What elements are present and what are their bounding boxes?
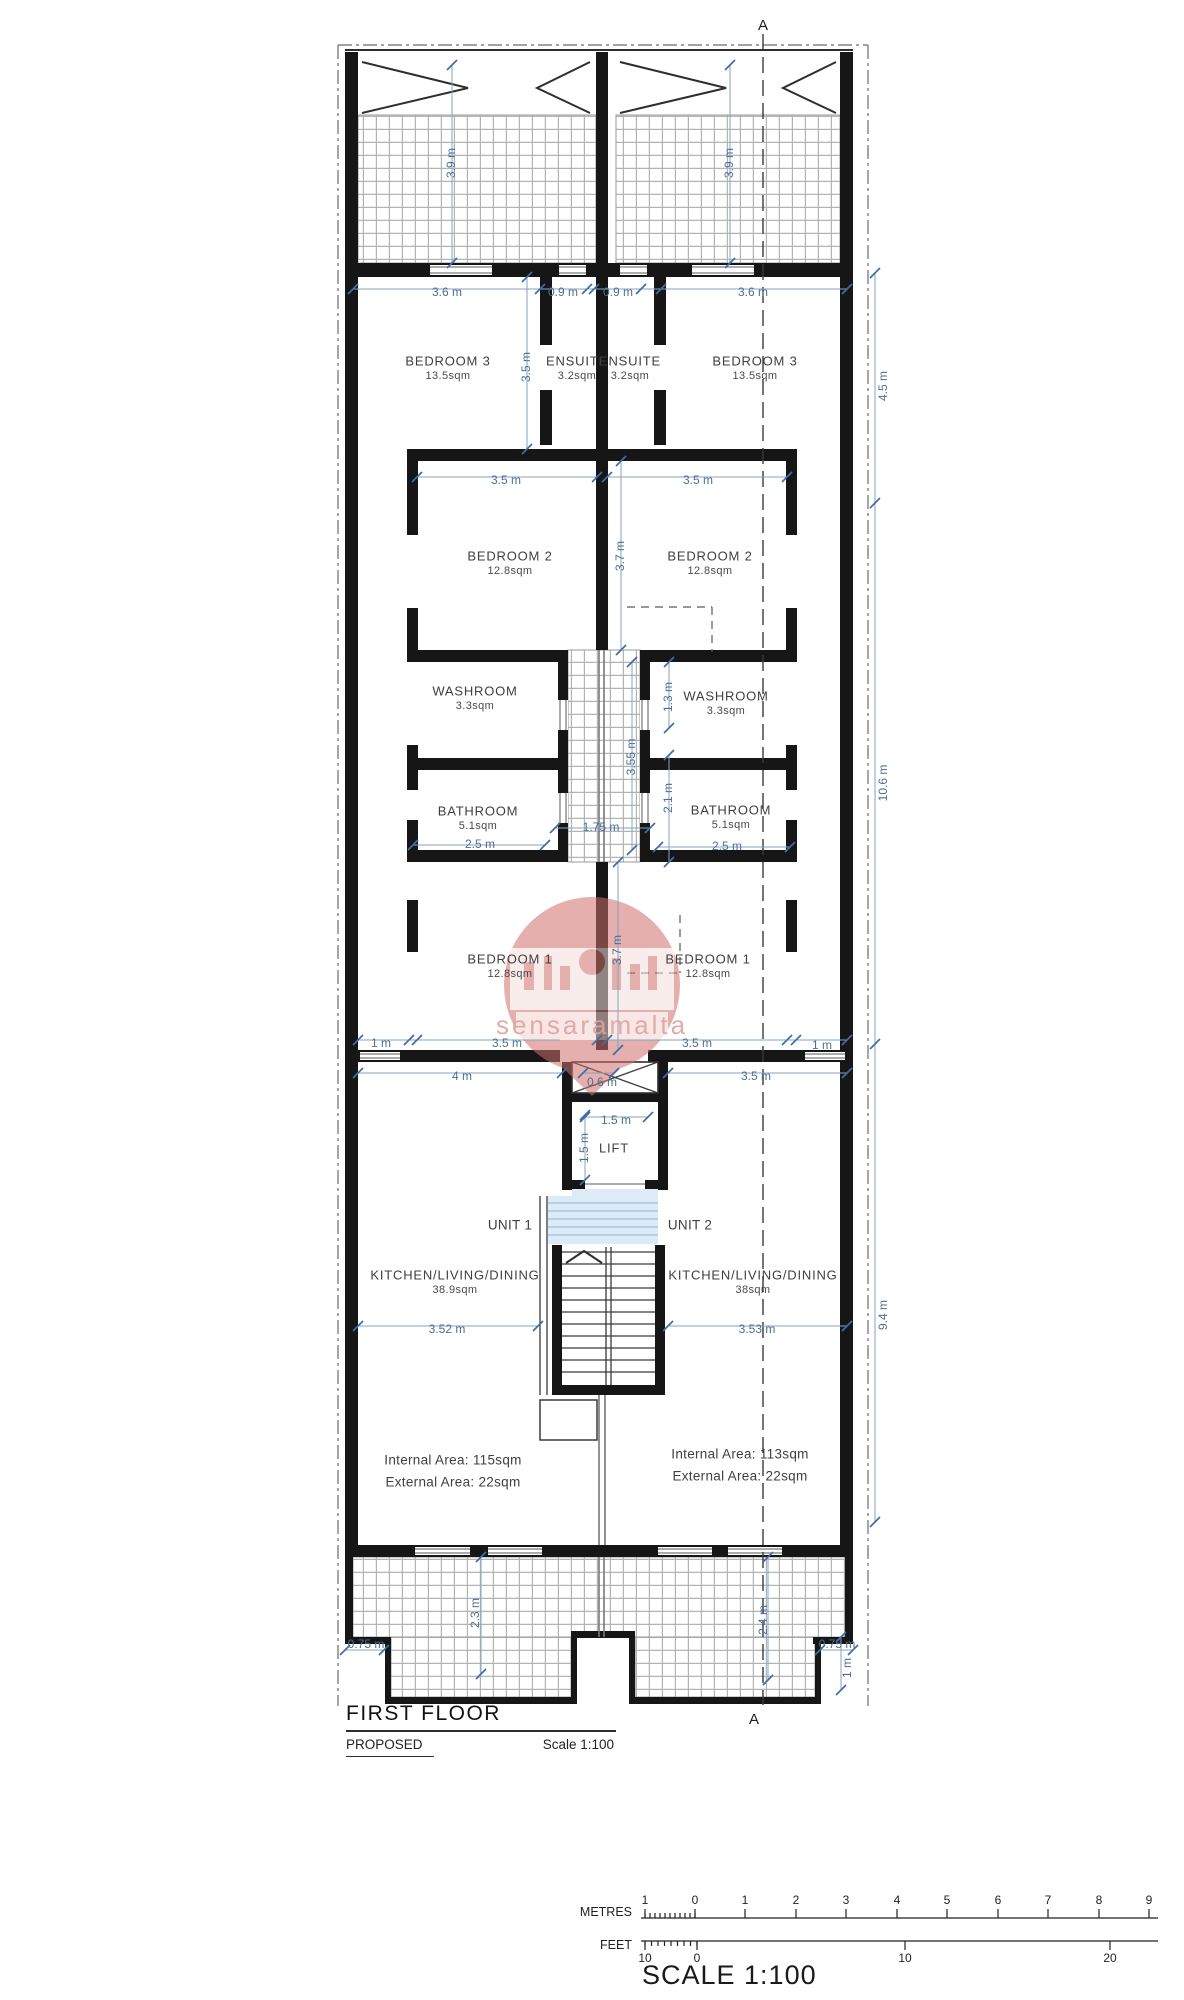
room-label: WASHROOM	[432, 683, 517, 698]
dimension-label: 0.9 m	[603, 285, 633, 299]
dimension-label: 4.5 m	[876, 371, 890, 401]
room-area: 12.8sqm	[488, 968, 533, 980]
room-label: ENSUITE	[599, 353, 661, 368]
dimension-label: 2.4 m	[756, 1605, 770, 1635]
scalebar-metres-tick: 6	[995, 1893, 1002, 1907]
dimension-label: 9.4 m	[876, 1300, 890, 1330]
dimension-label: 0.6 m	[587, 1075, 617, 1089]
balcony-left-tiles	[358, 115, 596, 263]
dimension-label: 3.5 m	[491, 473, 521, 487]
scalebar-metres-tick: 2	[793, 1893, 800, 1907]
drawing-scale-note: Scale 1:100	[543, 1737, 614, 1752]
unit-label: UNIT 2	[668, 1218, 712, 1233]
room-area: 5.1sqm	[712, 819, 750, 831]
dimension-label: 3.5 m	[519, 352, 533, 382]
room-label: BEDROOM 3	[712, 353, 797, 368]
room-area: 3.3sqm	[456, 700, 494, 712]
dimension-label: 3.5 m	[683, 473, 713, 487]
dimension-label: 1 m	[812, 1038, 832, 1052]
stair-direction-arrow	[566, 1251, 602, 1263]
title-block: FIRST FLOOR PROPOSED Scale 1:100	[346, 1702, 616, 1757]
dimension-label: 3.9 m	[722, 148, 736, 178]
scale-heading: SCALE 1:100	[642, 1960, 817, 1990]
room-label: KITCHEN/LIVING/DINING	[370, 1267, 539, 1282]
scalebar-feet-tick: 10	[638, 1951, 652, 1965]
status-rule	[346, 1756, 434, 1757]
section-marker: A	[758, 17, 768, 34]
dimension-label: 3.6 m	[432, 285, 462, 299]
floor-plan-drawing: METRES FEET SCALE 1:100 BEDROOM 313.5sqm…	[0, 0, 1184, 2000]
unit-external-area: External Area: 22sqm	[672, 1469, 807, 1484]
dimension-label: 3.52 m	[429, 1322, 466, 1336]
scalebar-metres-tick: 3	[843, 1893, 850, 1907]
scalebar-metres-tick: 4	[894, 1893, 901, 1907]
feet-label: FEET	[600, 1938, 632, 1952]
staircase	[562, 1247, 655, 1385]
room-label: BEDROOM 2	[467, 548, 552, 563]
dimension-label: 1 m	[840, 1658, 854, 1678]
scalebar-metres-tick: 7	[1045, 1893, 1052, 1907]
room-label: BEDROOM 3	[405, 353, 490, 368]
unit-label: UNIT 1	[488, 1218, 532, 1233]
dimension-label: 2.5 m	[465, 837, 495, 851]
dimension-label: 0.75 m	[819, 1637, 856, 1651]
dimension-label: 3.7 m	[613, 541, 627, 571]
dimension-label: 4 m	[452, 1069, 472, 1083]
scalebar-feet-tick: 10	[898, 1951, 912, 1965]
scalebar-metres-tick: 9	[1146, 1893, 1153, 1907]
dimension-label: 10.6 m	[876, 765, 890, 802]
metres-label: METRES	[580, 1905, 632, 1919]
room-area: 38sqm	[735, 1284, 770, 1296]
room-area: 12.8sqm	[686, 968, 731, 980]
floor-plan-page: METRES FEET SCALE 1:100 BEDROOM 313.5sqm…	[0, 0, 1184, 2000]
dimension-label: 3.9 m	[444, 148, 458, 178]
room-label: KITCHEN/LIVING/DINING	[668, 1267, 837, 1282]
dimension-label: 1.5 m	[601, 1113, 631, 1127]
scalebar-feet-tick: 0	[694, 1951, 701, 1965]
room-area: 3.2sqm	[611, 370, 649, 382]
room-area: 3.2sqm	[558, 370, 596, 382]
dimension-label: 3.55 m	[624, 739, 638, 776]
section-marker: A	[749, 1711, 759, 1728]
dimension-label: 3.53 m	[739, 1322, 776, 1336]
room-area: 38.9sqm	[433, 1284, 478, 1296]
room-label: BATHROOM	[691, 802, 772, 817]
dimension-label: 3.5 m	[741, 1069, 771, 1083]
backyard-right-tiles	[635, 1637, 815, 1697]
kitchen-fixture	[540, 1400, 597, 1440]
unit-internal-area: Internal Area: 115sqm	[384, 1453, 521, 1468]
scalebar-feet-tick: 20	[1103, 1951, 1117, 1965]
scalebar-metres-tick: 0	[692, 1893, 699, 1907]
dimension-label: 2.5 m	[712, 839, 742, 853]
room-label: BATHROOM	[438, 803, 519, 818]
watermark-text: sensaramalta	[496, 1010, 688, 1040]
dimension-label: 2.3 m	[468, 1598, 482, 1628]
dimension-label: 1.3 m	[661, 682, 675, 712]
scalebar-metres-tick: 1	[742, 1893, 749, 1907]
scalebar-metres-tick: 5	[944, 1893, 951, 1907]
dimension-label: 2.1 m	[661, 783, 675, 813]
dimension-label: 1 m	[371, 1036, 391, 1050]
stair-treads	[562, 1247, 655, 1385]
dimension-label: 3.6 m	[738, 285, 768, 299]
room-label: BEDROOM 1	[467, 951, 552, 966]
room-area: 12.8sqm	[488, 565, 533, 577]
unit-external-area: External Area: 22sqm	[385, 1475, 520, 1490]
dimension-label: 0.75 m	[348, 1637, 385, 1651]
room-area: 12.8sqm	[688, 565, 733, 577]
dimension-label: 1.5 m	[577, 1133, 591, 1163]
drawing-title: FIRST FLOOR	[346, 1702, 616, 1726]
room-label: BEDROOM 2	[667, 548, 752, 563]
room-area: 13.5sqm	[733, 370, 778, 382]
room-area: 13.5sqm	[426, 370, 471, 382]
title-rule	[346, 1730, 616, 1732]
drawing-status: PROPOSED	[346, 1737, 423, 1752]
room-area: 5.1sqm	[459, 820, 497, 832]
room-label: BEDROOM 1	[665, 951, 750, 966]
room-label: LIFT	[599, 1140, 629, 1155]
room-label: WASHROOM	[683, 688, 768, 703]
dimension-label: 1.75 m	[583, 820, 620, 834]
dimension-label: 0.9 m	[548, 285, 578, 299]
dimension-label: 3.7 m	[610, 935, 624, 965]
room-area: 3.3sqm	[707, 705, 745, 717]
scalebar-metres-tick: 1	[642, 1893, 649, 1907]
unit-internal-area: Internal Area: 113sqm	[671, 1447, 808, 1462]
scalebar-metres-tick: 8	[1096, 1893, 1103, 1907]
balcony-right-tiles	[616, 115, 840, 263]
